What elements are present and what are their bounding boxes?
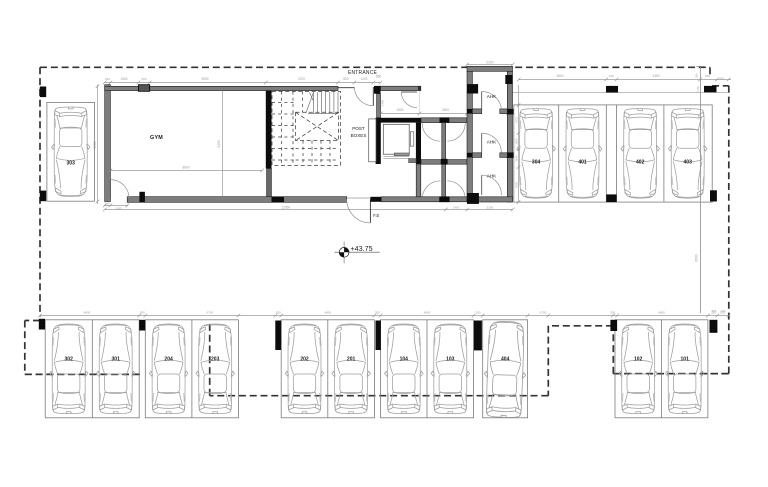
svg-text:2200: 2200 bbox=[487, 205, 494, 209]
svg-text:4800: 4800 bbox=[424, 310, 431, 314]
svg-text:404: 404 bbox=[501, 356, 510, 362]
svg-text:2650: 2650 bbox=[396, 108, 403, 112]
svg-text:350: 350 bbox=[476, 310, 481, 314]
svg-text:103: 103 bbox=[446, 356, 455, 362]
svg-text:202: 202 bbox=[300, 356, 309, 362]
svg-text:4800: 4800 bbox=[324, 310, 331, 314]
svg-text:5450: 5450 bbox=[217, 140, 221, 147]
svg-text:2500: 2500 bbox=[442, 108, 449, 112]
svg-text:4800: 4800 bbox=[556, 74, 563, 78]
svg-text:4800: 4800 bbox=[658, 310, 665, 314]
svg-text:200: 200 bbox=[719, 77, 724, 81]
svg-text:2350: 2350 bbox=[515, 181, 519, 188]
svg-text:1200: 1200 bbox=[360, 77, 367, 81]
svg-text:AHK: AHK bbox=[487, 139, 497, 144]
svg-text:500: 500 bbox=[141, 77, 146, 81]
svg-text:350: 350 bbox=[610, 310, 615, 314]
svg-text:ENTRANCE: ENTRANCE bbox=[348, 70, 378, 76]
svg-text:POST: POST bbox=[352, 126, 365, 131]
svg-text:1415: 1415 bbox=[515, 116, 519, 123]
svg-text:340: 340 bbox=[609, 74, 614, 78]
svg-text:500: 500 bbox=[705, 74, 710, 78]
svg-text:AHK: AHK bbox=[487, 94, 497, 99]
svg-text:6750: 6750 bbox=[540, 310, 547, 314]
svg-text:200: 200 bbox=[694, 73, 698, 78]
svg-text:1450: 1450 bbox=[453, 205, 460, 209]
svg-text:800: 800 bbox=[343, 77, 349, 81]
svg-text:1550: 1550 bbox=[120, 77, 127, 81]
svg-text:101: 101 bbox=[681, 356, 690, 362]
svg-text:BOXES: BOXES bbox=[351, 133, 367, 138]
svg-text:201: 201 bbox=[347, 356, 356, 362]
svg-text:350: 350 bbox=[712, 309, 717, 313]
svg-text:303: 303 bbox=[67, 160, 76, 166]
svg-text:5950: 5950 bbox=[201, 77, 208, 81]
svg-text:350: 350 bbox=[140, 310, 145, 314]
svg-text:304: 304 bbox=[532, 159, 541, 165]
svg-text:104: 104 bbox=[400, 356, 409, 362]
svg-text:301: 301 bbox=[112, 356, 121, 362]
svg-text:102: 102 bbox=[634, 356, 643, 362]
svg-text:1005: 1005 bbox=[515, 138, 519, 145]
svg-text:204: 204 bbox=[164, 356, 173, 362]
svg-text:401: 401 bbox=[578, 159, 587, 165]
svg-text:302: 302 bbox=[65, 356, 74, 362]
svg-text:F.E: F.E bbox=[373, 213, 379, 218]
svg-text:402: 402 bbox=[636, 159, 645, 165]
svg-text:4350: 4350 bbox=[652, 74, 659, 78]
svg-text:2200: 2200 bbox=[486, 61, 493, 65]
svg-text:1750: 1750 bbox=[696, 86, 700, 92]
svg-text:1400: 1400 bbox=[381, 99, 385, 106]
svg-text:200: 200 bbox=[721, 309, 726, 313]
svg-text:8600: 8600 bbox=[182, 166, 189, 170]
svg-text:250: 250 bbox=[105, 77, 110, 81]
svg-text:AHK: AHK bbox=[487, 174, 497, 179]
svg-text:6000: 6000 bbox=[695, 254, 699, 261]
svg-text:12950: 12950 bbox=[281, 205, 290, 209]
svg-text:350: 350 bbox=[276, 310, 281, 314]
svg-text:6750: 6750 bbox=[206, 310, 213, 314]
svg-text:3700: 3700 bbox=[298, 77, 305, 81]
svg-text:GYM: GYM bbox=[150, 135, 163, 141]
svg-text:4800: 4800 bbox=[84, 310, 91, 314]
svg-text:1440: 1440 bbox=[515, 155, 519, 162]
svg-text:203: 203 bbox=[211, 356, 220, 362]
svg-text:+43.75: +43.75 bbox=[350, 244, 372, 253]
svg-text:403: 403 bbox=[684, 159, 693, 165]
svg-text:250: 250 bbox=[105, 201, 110, 205]
svg-text:350: 350 bbox=[375, 310, 380, 314]
